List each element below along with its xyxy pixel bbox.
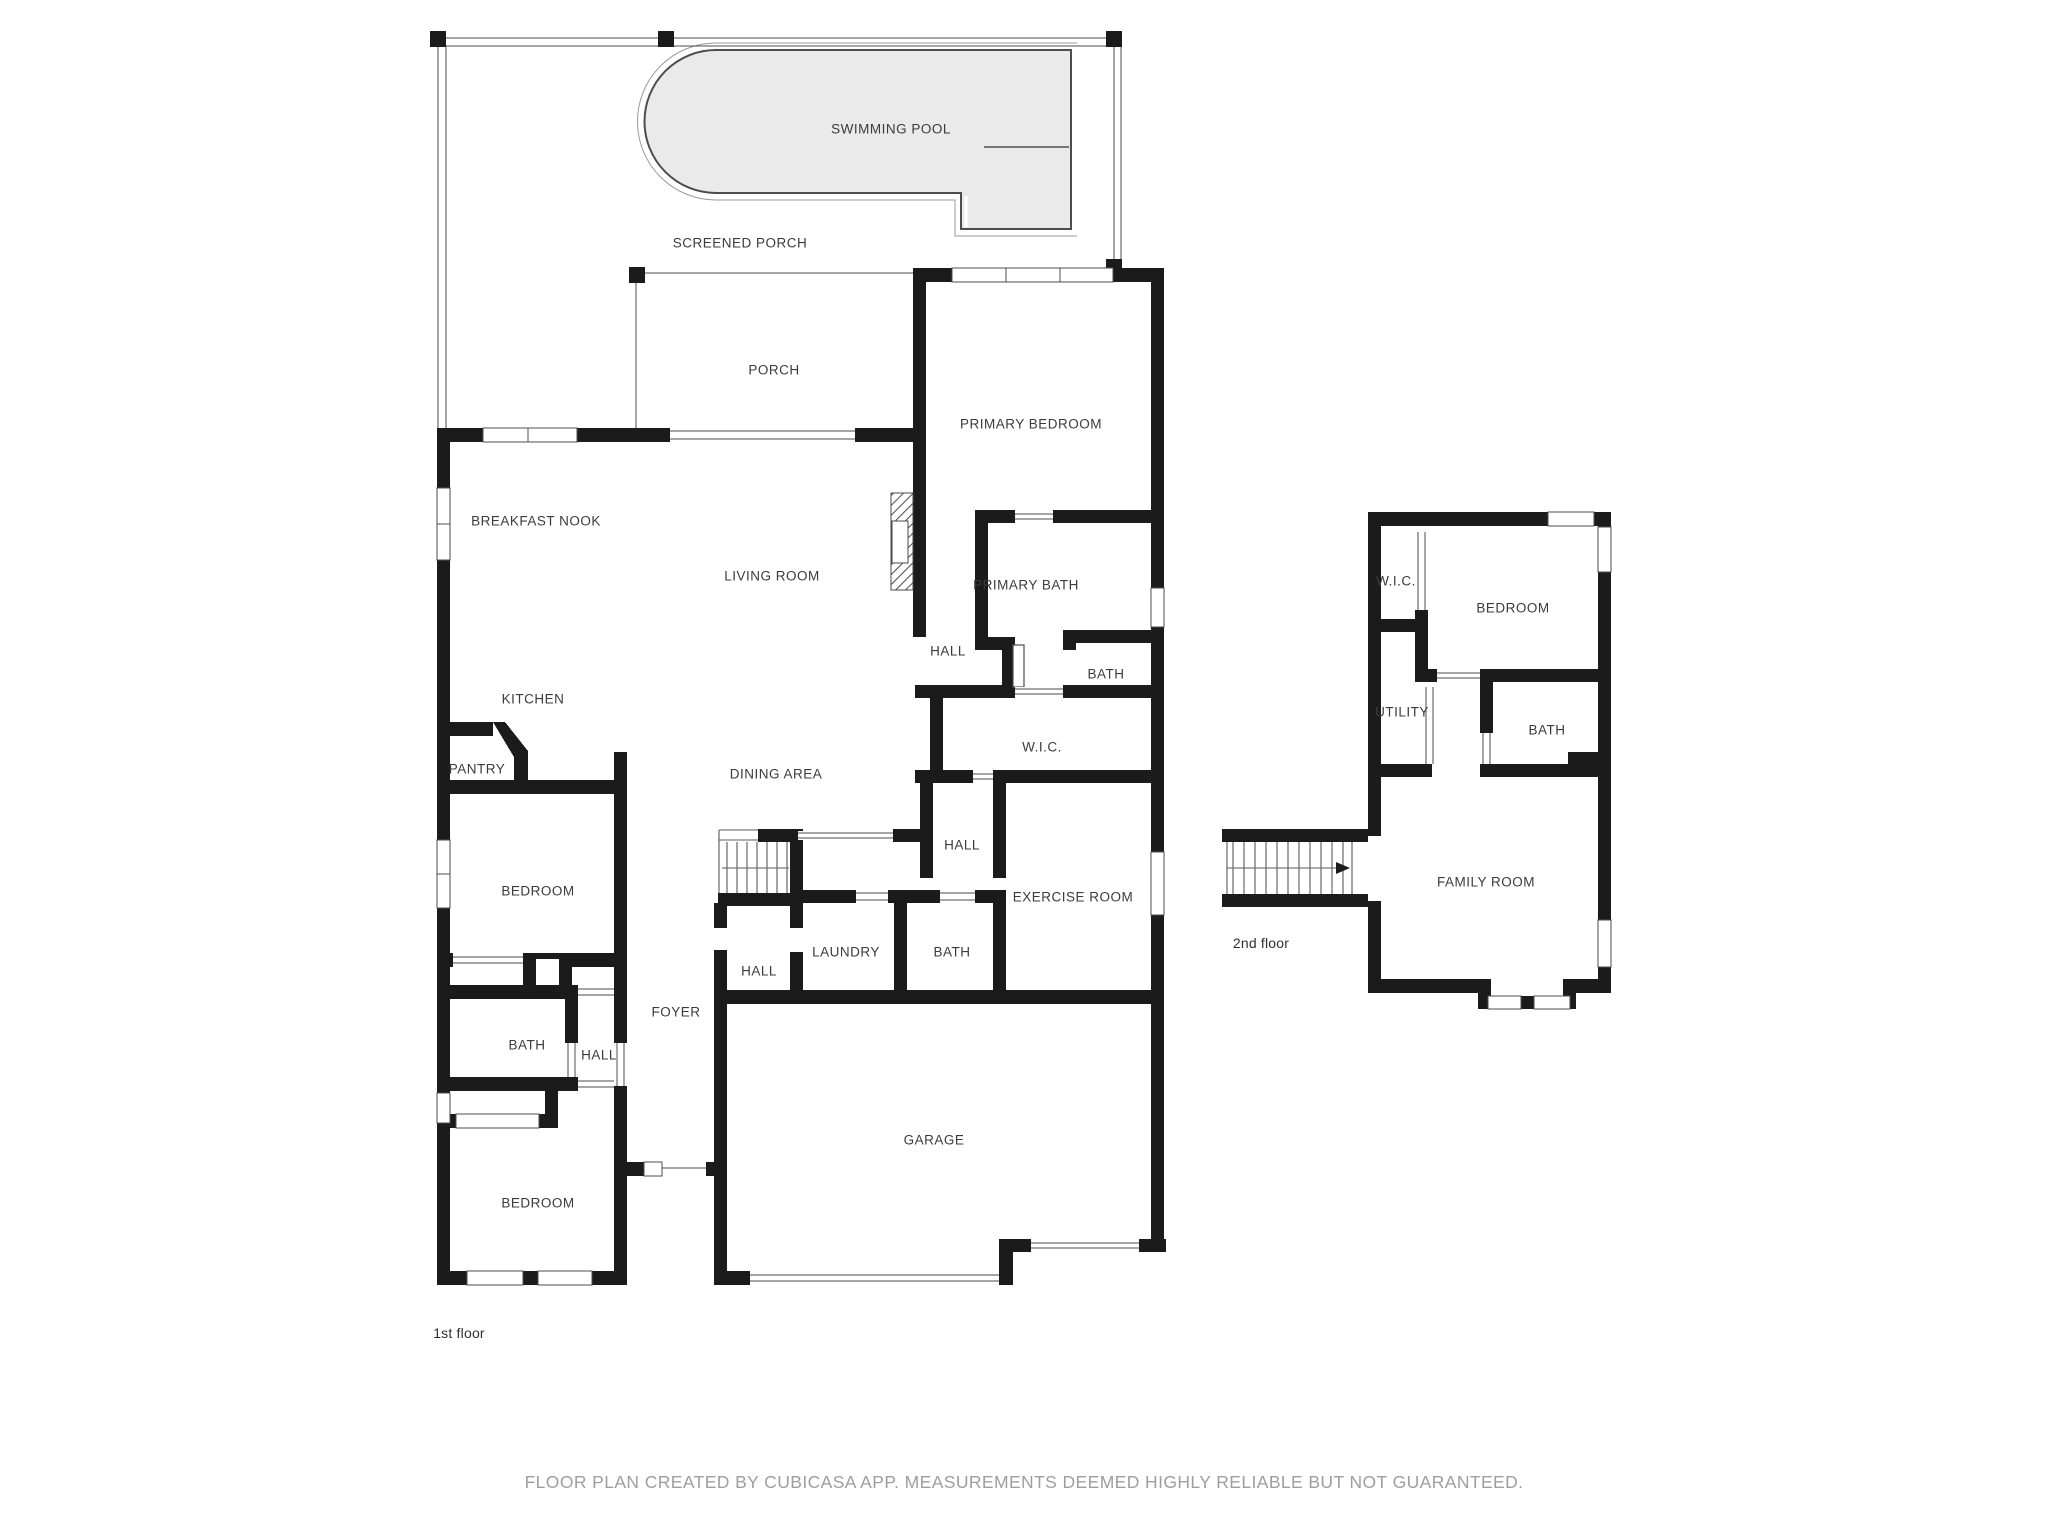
porch-outline	[629, 267, 913, 428]
room-label-bedroom-2: BEDROOM	[1476, 601, 1549, 616]
footer-disclaimer: FLOOR PLAN CREATED BY CUBICASA APP. MEAS…	[0, 1472, 2048, 1493]
room-label-pantry: PANTRY	[449, 762, 506, 777]
room-label-screened-porch: SCREENED PORCH	[673, 236, 808, 251]
room-label-family-room: FAMILY ROOM	[1437, 875, 1535, 890]
room-label-bedroom-lower: BEDROOM	[501, 1196, 574, 1211]
room-label-primary-bath: PRIMARY BATH	[973, 578, 1079, 593]
floor-plan-drawing	[0, 0, 2048, 1536]
room-label-swimming-pool: SWIMMING POOL	[831, 122, 951, 137]
room-label-dining-area: DINING AREA	[730, 767, 823, 782]
room-label-garage: GARAGE	[904, 1133, 965, 1148]
room-label-bath-middle: BATH	[933, 945, 970, 960]
room-label-primary-bedroom: PRIMARY BEDROOM	[960, 417, 1102, 432]
room-label-kitchen: KITCHEN	[502, 692, 565, 707]
room-label-breakfast-nook: BREAKFAST NOOK	[471, 514, 601, 529]
room-label-hall-stairs: HALL	[741, 964, 777, 979]
floor-name-floor-2: 2nd floor	[1233, 935, 1289, 951]
room-label-bedroom-upper: BEDROOM	[501, 884, 574, 899]
room-label-wic: W.I.C.	[1022, 740, 1062, 755]
room-label-wic-2: W.I.C.	[1376, 574, 1416, 589]
floor-name-floor-1: 1st floor	[433, 1325, 485, 1341]
room-label-bath-lower: BATH	[508, 1038, 545, 1053]
room-label-foyer: FOYER	[651, 1005, 700, 1020]
room-label-living-room: LIVING ROOM	[724, 569, 820, 584]
room-label-hall-middle: HALL	[944, 838, 980, 853]
floor2-stairs-icon	[1227, 842, 1352, 894]
swimming-pool-shape	[638, 43, 1078, 236]
room-label-utility: UTILITY	[1375, 705, 1429, 720]
room-label-bath-2: BATH	[1528, 723, 1565, 738]
room-label-laundry: LAUNDRY	[812, 945, 880, 960]
room-label-bath-upper: BATH	[1087, 667, 1124, 682]
room-label-exercise-room: EXERCISE ROOM	[1013, 890, 1134, 905]
room-label-hall-lower: HALL	[581, 1048, 617, 1063]
room-label-porch: PORCH	[748, 363, 799, 378]
room-label-hall-upper: HALL	[930, 644, 966, 659]
fireplace-icon	[891, 493, 913, 590]
floor-plan-page: SWIMMING POOLSCREENED PORCHPORCHPRIMARY …	[0, 0, 2048, 1536]
